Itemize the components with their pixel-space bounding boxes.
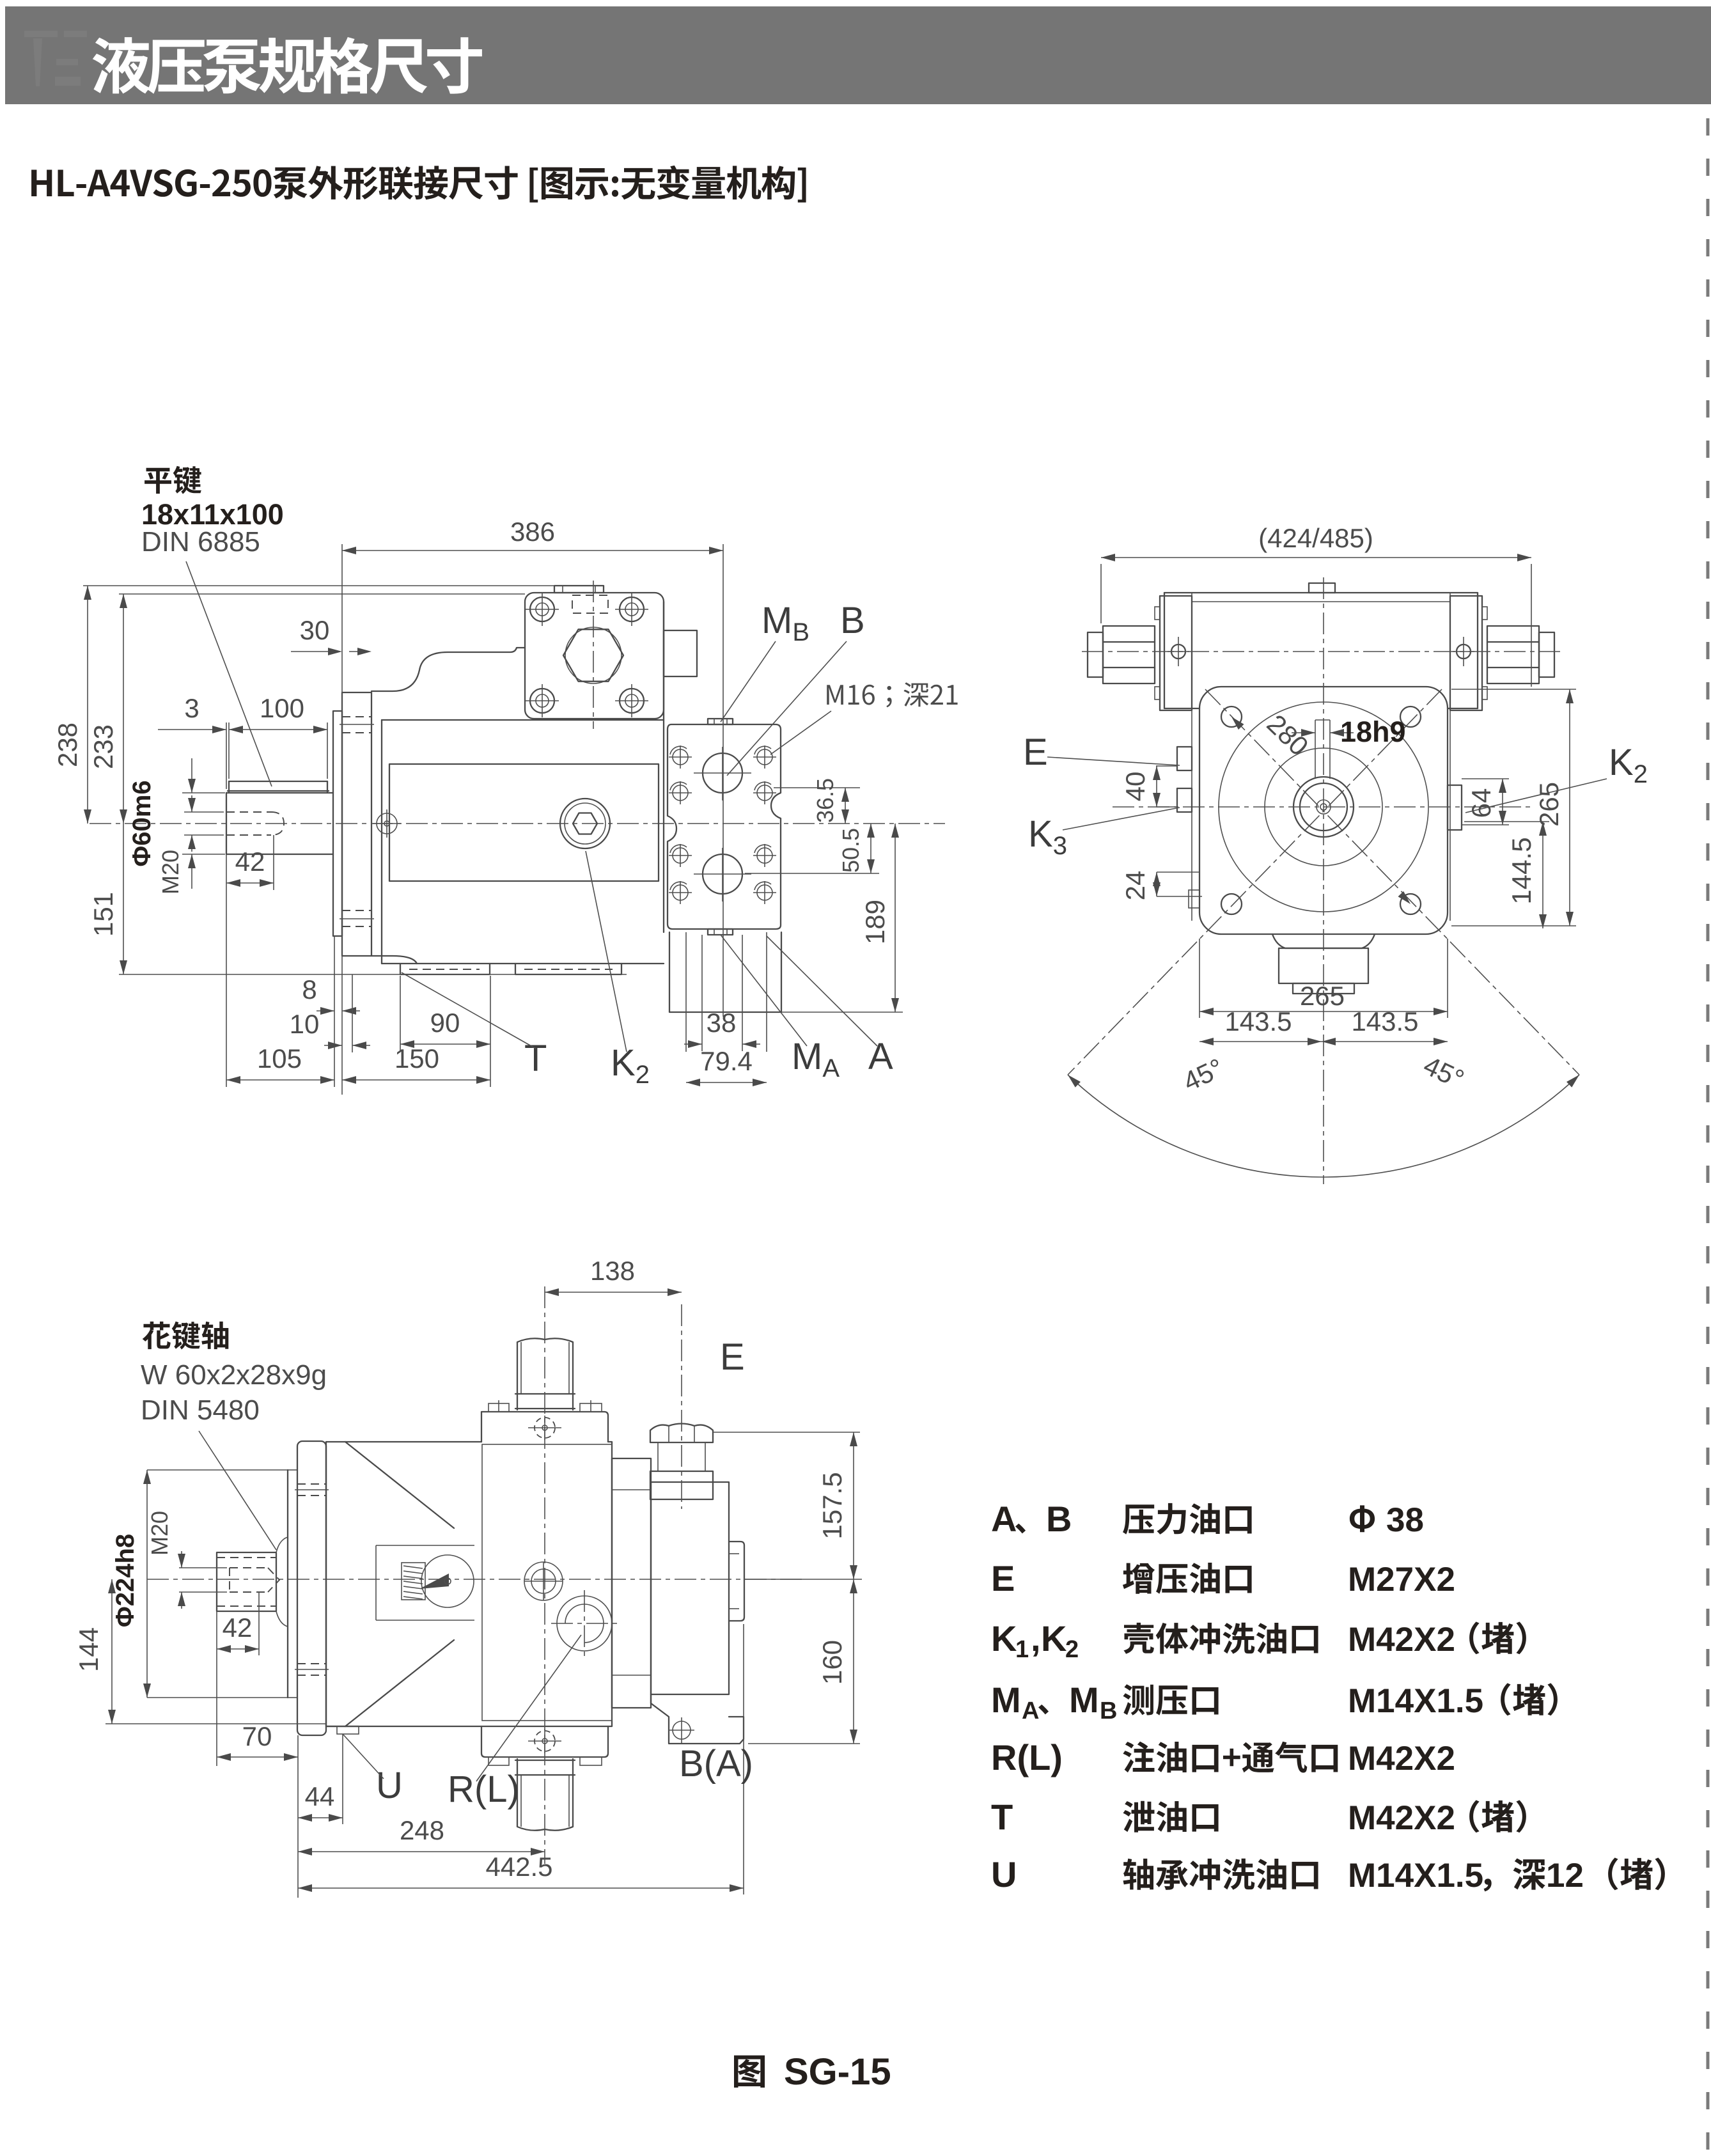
svg-text:138: 138 bbox=[590, 1256, 635, 1286]
svg-text:W 60x2x28x9g: W 60x2x28x9g bbox=[141, 1359, 327, 1391]
svg-text:238: 238 bbox=[52, 723, 82, 767]
svg-text:144: 144 bbox=[74, 1627, 104, 1672]
svg-text:45°: 45° bbox=[1419, 1050, 1468, 1094]
svg-text:DIN 6885: DIN 6885 bbox=[141, 526, 260, 558]
svg-text:64: 64 bbox=[1466, 788, 1496, 818]
svg-text:233: 233 bbox=[88, 724, 118, 769]
svg-text:36.5: 36.5 bbox=[812, 778, 838, 823]
svg-text:E: E bbox=[1023, 731, 1048, 773]
svg-text:248: 248 bbox=[400, 1815, 444, 1845]
svg-text:30: 30 bbox=[300, 615, 330, 645]
svg-text:U: U bbox=[376, 1765, 403, 1806]
svg-text:189: 189 bbox=[860, 900, 890, 944]
svg-text:M42X2: M42X2 bbox=[1348, 1740, 1455, 1777]
svg-text:K2: K2 bbox=[611, 1042, 650, 1089]
svg-text:K: K bbox=[1041, 1618, 1066, 1659]
svg-text:A: A bbox=[868, 1036, 893, 1077]
svg-text:K3: K3 bbox=[1028, 813, 1067, 860]
svg-text:A: A bbox=[1022, 1698, 1039, 1724]
svg-text:MA: MA bbox=[792, 1036, 840, 1082]
svg-text:105: 105 bbox=[257, 1043, 302, 1074]
svg-text:R(L): R(L) bbox=[991, 1737, 1063, 1777]
svg-text:M20: M20 bbox=[146, 1511, 173, 1556]
svg-text:M14X1.5: M14X1.5 bbox=[1348, 1857, 1483, 1894]
svg-text:Φ224h8: Φ224h8 bbox=[111, 1534, 139, 1627]
svg-text:70: 70 bbox=[242, 1721, 272, 1751]
svg-text:T: T bbox=[991, 1797, 1013, 1837]
svg-text:50.5: 50.5 bbox=[838, 828, 864, 873]
svg-text:38: 38 bbox=[707, 1008, 737, 1038]
svg-text:265: 265 bbox=[1534, 782, 1564, 827]
svg-text:R(L): R(L) bbox=[448, 1769, 520, 1810]
svg-text:38: 38 bbox=[1386, 1501, 1424, 1539]
svg-text:90: 90 bbox=[430, 1008, 460, 1038]
svg-text:100: 100 bbox=[260, 693, 304, 723]
svg-text:M14X1.5: M14X1.5 bbox=[1348, 1682, 1483, 1720]
svg-text:265: 265 bbox=[1300, 981, 1345, 1011]
svg-text:M42X2: M42X2 bbox=[1348, 1799, 1455, 1837]
svg-text:K2: K2 bbox=[1609, 742, 1648, 788]
svg-text:E: E bbox=[991, 1558, 1015, 1598]
svg-text:42: 42 bbox=[235, 847, 265, 877]
svg-text:2: 2 bbox=[1065, 1636, 1079, 1663]
svg-text:SG-15: SG-15 bbox=[784, 2051, 891, 2093]
svg-text:M: M bbox=[991, 1680, 1021, 1720]
svg-text:3: 3 bbox=[184, 693, 199, 723]
svg-text:143.5: 143.5 bbox=[1351, 1006, 1418, 1036]
svg-text:B(A): B(A) bbox=[679, 1743, 753, 1785]
svg-text:157.5: 157.5 bbox=[817, 1472, 847, 1539]
svg-text:E: E bbox=[720, 1336, 745, 1378]
svg-text:A: A bbox=[991, 1499, 1017, 1539]
svg-text:24: 24 bbox=[1120, 871, 1150, 901]
svg-text:B: B bbox=[840, 600, 865, 641]
svg-text:B: B bbox=[1100, 1698, 1117, 1724]
svg-text:45°: 45° bbox=[1178, 1052, 1228, 1097]
svg-text:Φ60m6: Φ60m6 bbox=[128, 780, 156, 866]
svg-text:(424/485): (424/485) bbox=[1258, 523, 1373, 553]
svg-text:42: 42 bbox=[223, 1613, 253, 1643]
svg-text:B: B bbox=[1046, 1499, 1072, 1539]
svg-text:442.5: 442.5 bbox=[485, 1852, 552, 1882]
svg-text:12: 12 bbox=[1546, 1857, 1584, 1894]
svg-text:M27X2: M27X2 bbox=[1348, 1561, 1455, 1598]
svg-text:18h9: 18h9 bbox=[1340, 715, 1406, 748]
svg-text:144.5: 144.5 bbox=[1506, 837, 1536, 904]
svg-text:8: 8 bbox=[302, 974, 316, 1004]
svg-text:DIN 5480: DIN 5480 bbox=[141, 1394, 260, 1426]
svg-text:10: 10 bbox=[290, 1009, 320, 1039]
svg-text:40: 40 bbox=[1120, 772, 1150, 802]
svg-text:150: 150 bbox=[395, 1043, 439, 1074]
svg-text:44: 44 bbox=[305, 1781, 335, 1811]
svg-text:K: K bbox=[991, 1618, 1017, 1659]
svg-text:M42X2: M42X2 bbox=[1348, 1621, 1455, 1659]
svg-text:151: 151 bbox=[88, 892, 118, 937]
svg-text:79.4: 79.4 bbox=[700, 1046, 753, 1076]
svg-text:1: 1 bbox=[1015, 1636, 1029, 1663]
svg-text:M: M bbox=[1069, 1680, 1099, 1720]
svg-text:386: 386 bbox=[510, 517, 555, 547]
svg-text:U: U bbox=[991, 1854, 1017, 1894]
svg-text:143.5: 143.5 bbox=[1224, 1006, 1292, 1036]
svg-text:M20: M20 bbox=[157, 850, 184, 894]
svg-text:160: 160 bbox=[817, 1640, 847, 1685]
svg-text:MB: MB bbox=[762, 600, 809, 646]
svg-text:,: , bbox=[1031, 1618, 1041, 1659]
